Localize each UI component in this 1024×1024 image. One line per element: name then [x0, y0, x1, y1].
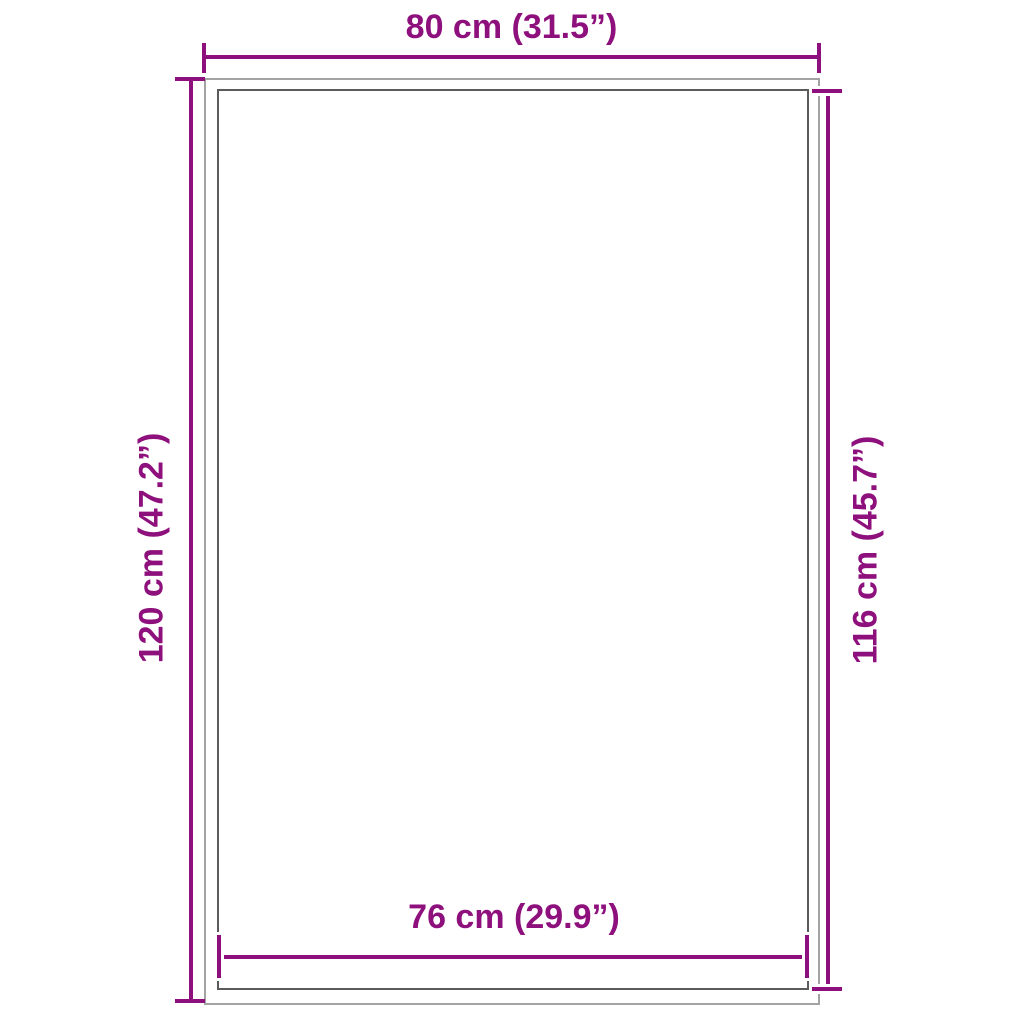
- top-dimension-tick-left: [202, 43, 206, 73]
- bottom-dimension-line: [219, 955, 809, 959]
- right-dimension-line: [826, 90, 830, 990]
- left-dimension-tick-bottom: [175, 999, 205, 1003]
- right-dimension-label: 116 cm (45.7”): [847, 436, 886, 665]
- right-dimension-tick-bottom: [812, 987, 842, 991]
- top-dimension-label: 80 cm (31.5”): [204, 2, 819, 52]
- bottom-dimension-label: 76 cm (29.9”): [219, 894, 809, 940]
- inner-rectangle-outline: [217, 89, 809, 990]
- left-dimension-tick-top: [175, 77, 205, 81]
- top-dimension-tick-right: [817, 43, 821, 73]
- top-dimension-line: [204, 55, 819, 59]
- right-dimension-tick-top: [812, 89, 842, 93]
- bottom-dimension-tick-left: [217, 935, 221, 978]
- left-dimension-line: [189, 78, 193, 1002]
- left-dimension-label: 120 cm (47.2”): [133, 433, 172, 664]
- bottom-dimension-tick-right: [805, 935, 809, 978]
- dimension-diagram: 80 cm (31.5”) 120 cm (47.2”) 116 cm (45.…: [0, 0, 1024, 1024]
